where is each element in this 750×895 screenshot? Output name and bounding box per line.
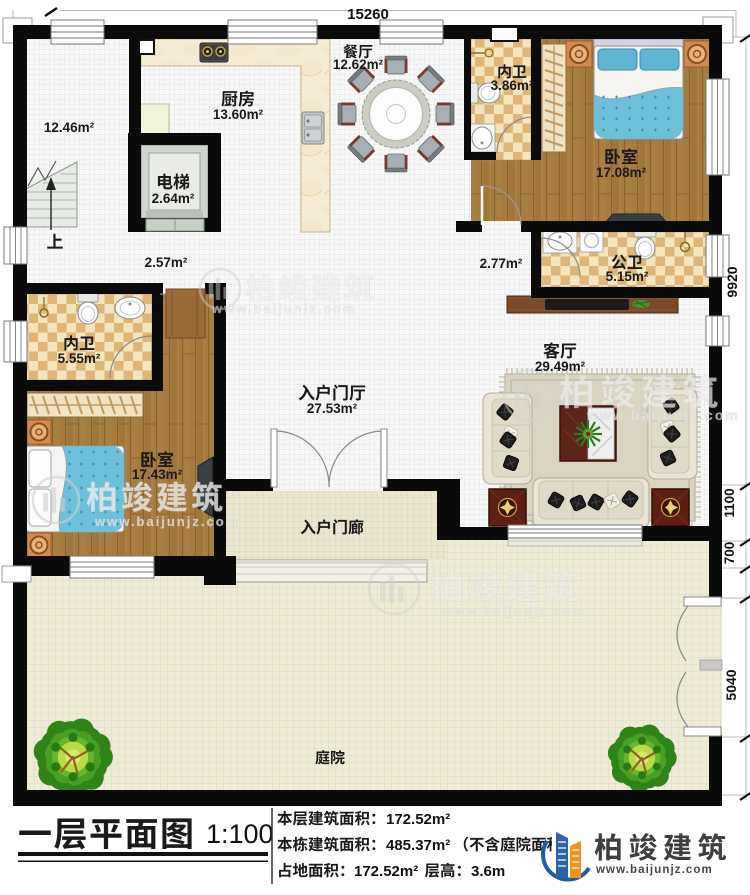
svg-text:5.55m²: 5.55m² bbox=[58, 351, 101, 366]
svg-text:5040: 5040 bbox=[723, 669, 739, 700]
svg-text:3.86m²: 3.86m² bbox=[491, 78, 534, 93]
svg-text:2.57m²: 2.57m² bbox=[145, 255, 188, 270]
svg-text:13.60m²: 13.60m² bbox=[213, 107, 264, 122]
svg-text:27.53m²: 27.53m² bbox=[307, 401, 358, 416]
svg-text:1:100: 1:100 bbox=[206, 819, 274, 849]
svg-text:www.baijunjz.com: www.baijunjz.com bbox=[595, 864, 713, 876]
svg-text:3.6m: 3.6m bbox=[471, 863, 505, 880]
svg-text:17.08m²: 17.08m² bbox=[596, 165, 647, 180]
svg-text:www.baijunjz.com: www.baijunjz.com bbox=[211, 301, 356, 316]
svg-text:29.49m²: 29.49m² bbox=[535, 359, 586, 374]
svg-text:www.baijunjz.com: www.baijunjz.com bbox=[586, 407, 740, 423]
svg-text:2.64m²: 2.64m² bbox=[152, 191, 195, 206]
svg-text:15260: 15260 bbox=[347, 6, 389, 23]
svg-text:172.52m²: 172.52m² bbox=[386, 811, 450, 828]
svg-text:172.52m²: 172.52m² bbox=[354, 863, 418, 880]
svg-text:485.37m²: 485.37m² bbox=[386, 837, 450, 854]
svg-text:www.baijunjz.com: www.baijunjz.com bbox=[94, 514, 239, 529]
svg-text:12.46m²: 12.46m² bbox=[44, 120, 95, 135]
svg-text:9920: 9920 bbox=[724, 266, 740, 297]
svg-text:17.43m²: 17.43m² bbox=[132, 467, 183, 482]
svg-text:2.77m²: 2.77m² bbox=[480, 256, 523, 271]
svg-text:1100: 1100 bbox=[722, 488, 737, 517]
svg-text:www.baijunjz.com: www.baijunjz.com bbox=[441, 604, 586, 619]
svg-text:5.15m²: 5.15m² bbox=[606, 269, 649, 284]
svg-text:700: 700 bbox=[722, 542, 737, 565]
svg-text:12.62m²: 12.62m² bbox=[333, 57, 384, 72]
